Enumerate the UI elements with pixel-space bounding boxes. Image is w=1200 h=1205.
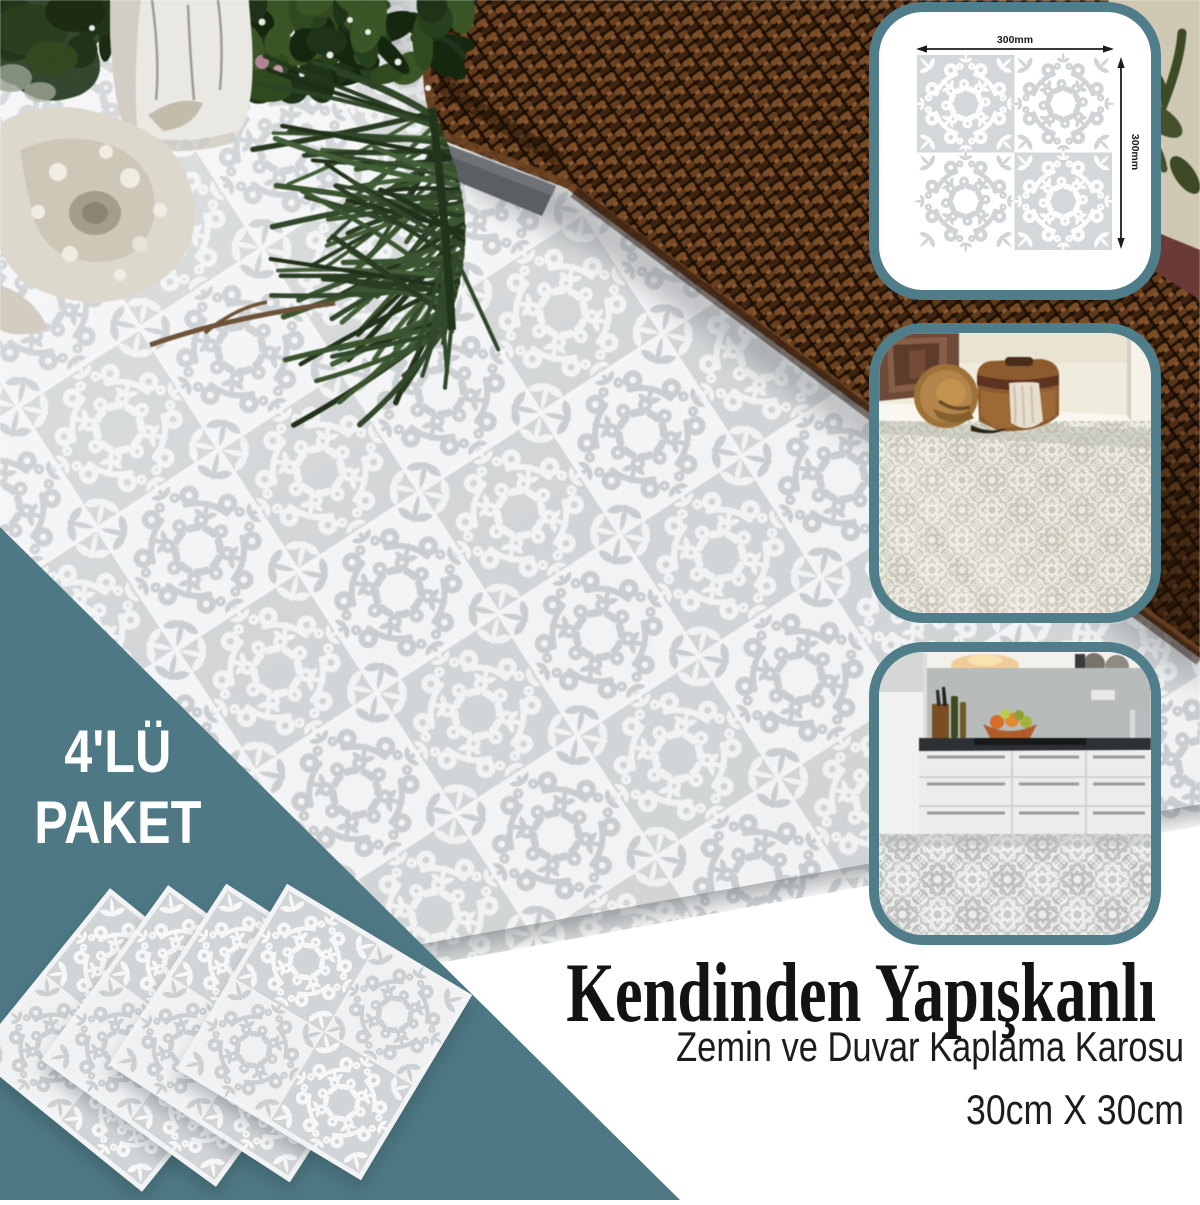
svg-text:300mm: 300mm xyxy=(1129,134,1141,170)
svg-text:300mm: 300mm xyxy=(997,34,1033,46)
